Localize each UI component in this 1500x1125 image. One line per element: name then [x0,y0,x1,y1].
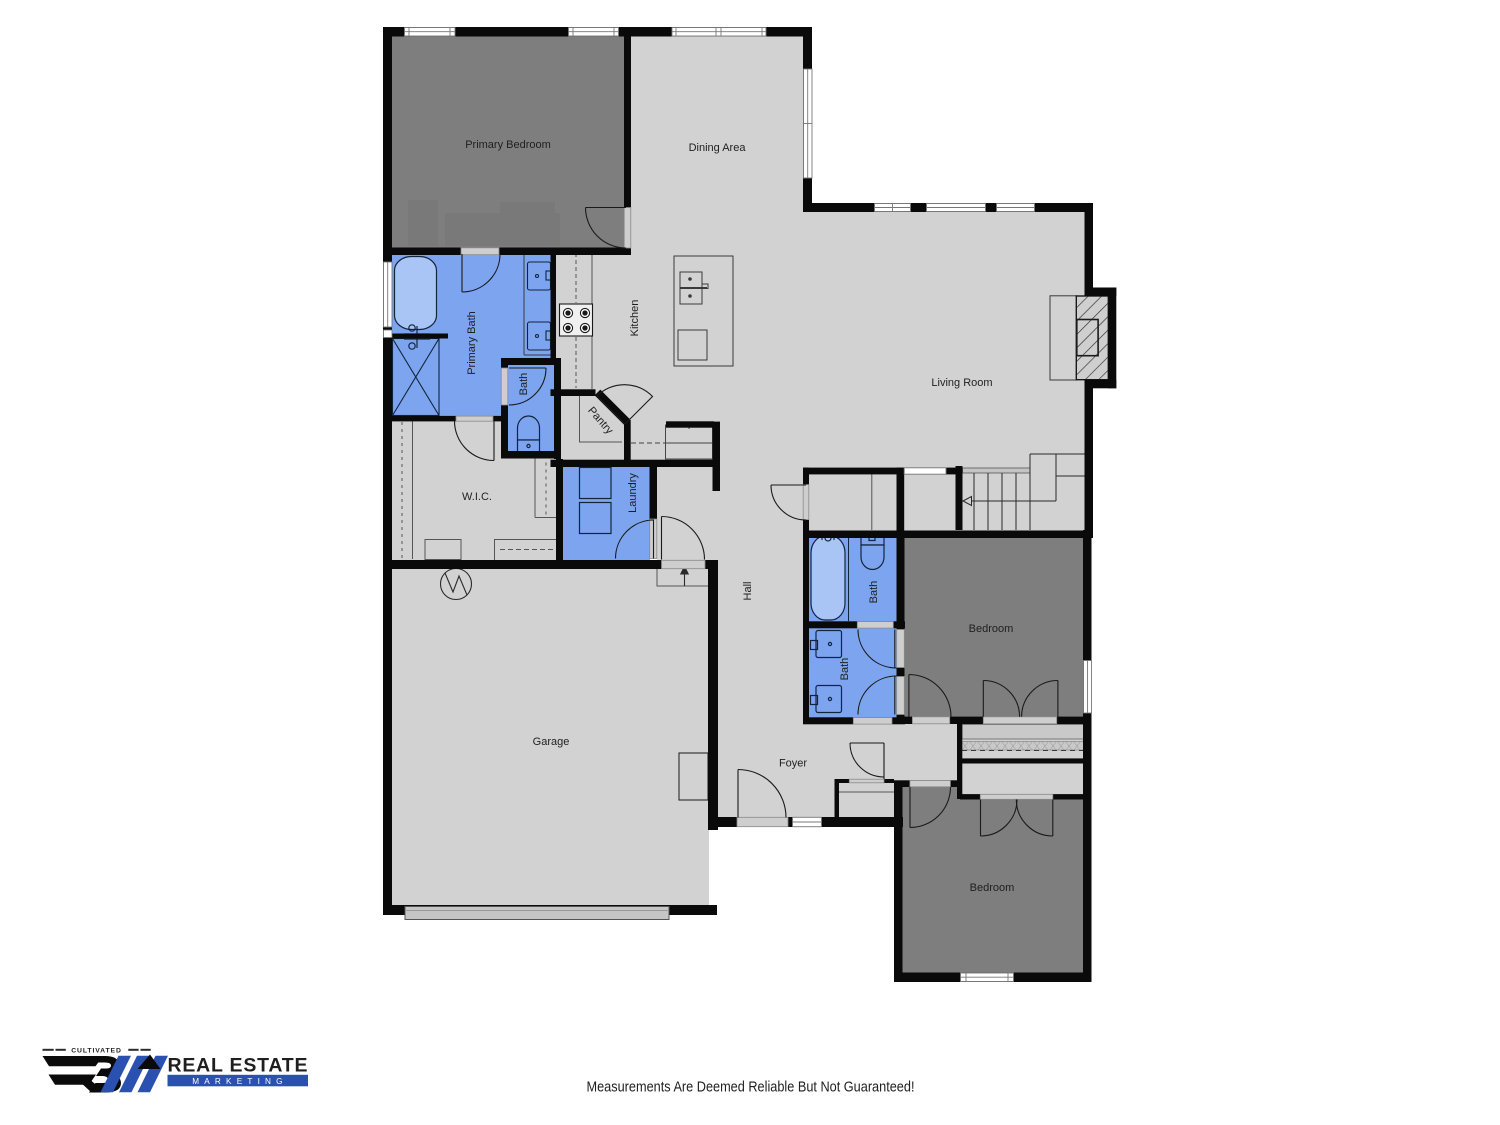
svg-text:Kitchen: Kitchen [629,300,641,337]
svg-text:REAL ESTATE: REAL ESTATE [168,1055,308,1077]
svg-text:Bedroom: Bedroom [969,623,1014,635]
svg-text:Primary Bedroom: Primary Bedroom [465,139,551,151]
svg-text:Bedroom: Bedroom [970,882,1015,894]
svg-text:CULTIVATED: CULTIVATED [71,1048,122,1055]
svg-text:Foyer: Foyer [779,758,807,770]
svg-text:Garage: Garage [533,736,570,748]
svg-text:Bath: Bath [518,373,530,396]
svg-text:Measurements Are Deemed Reliab: Measurements Are Deemed Reliable But Not… [587,1080,915,1096]
svg-text:Dining Area: Dining Area [689,142,747,154]
svg-text:Primary Bath: Primary Bath [466,311,478,375]
svg-text:MARKETING: MARKETING [192,1077,287,1086]
svg-text:Bath: Bath [868,581,880,604]
svg-text:Laundry: Laundry [627,473,639,513]
svg-text:Bath: Bath [839,658,851,681]
svg-text:Living Room: Living Room [931,377,992,389]
svg-text:Hall: Hall [742,582,754,601]
svg-text:W.I.C.: W.I.C. [462,491,492,503]
